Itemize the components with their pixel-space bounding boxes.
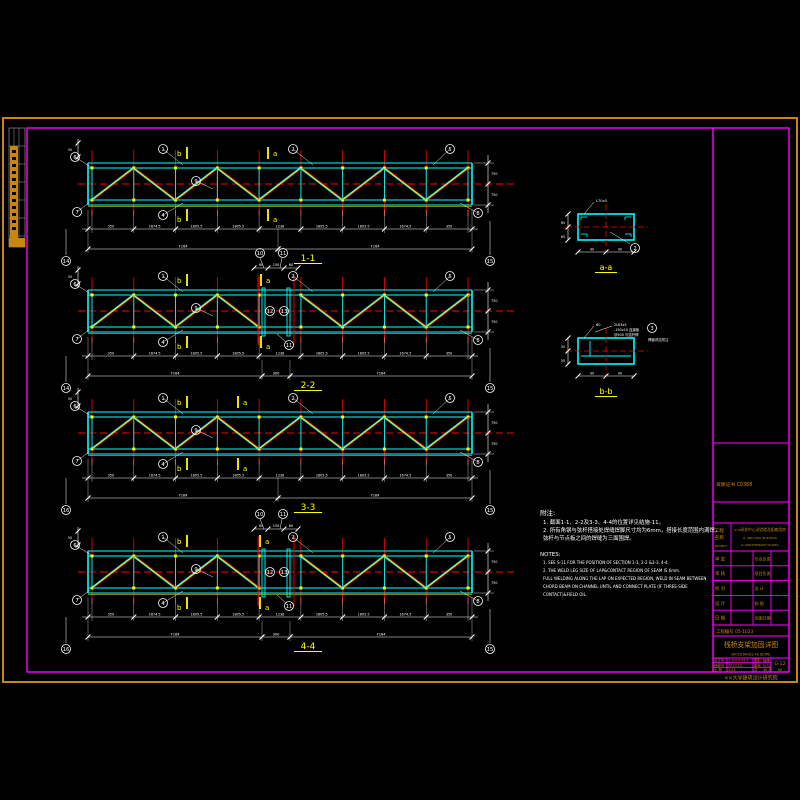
dim-text: 1674.5 xyxy=(149,474,161,478)
callout-number: 14 xyxy=(63,259,70,265)
project-name-en: & APPURTENANT WORKS xyxy=(741,543,778,547)
dim-text: 300 xyxy=(273,633,281,637)
section-marker-b: b xyxy=(177,465,182,473)
dim-text: 1674.5 xyxy=(399,474,411,478)
dim-text: 1238 xyxy=(276,225,285,229)
dim-text: 60 xyxy=(289,524,293,528)
truss-3-3: bbaa3501674.51805.51805.512381805.51805.… xyxy=(62,388,518,515)
dim-text: 55 xyxy=(561,359,565,363)
grid-label: 档案号 xyxy=(714,662,725,667)
grid-label: 设计号 xyxy=(714,658,725,663)
dim-text: 1805.5 xyxy=(358,225,370,229)
callout-number: 7 xyxy=(75,459,78,465)
dim-text: 350 xyxy=(446,474,452,478)
dim-text: 60 xyxy=(259,263,263,267)
dim-text: 1674.5 xyxy=(399,352,411,356)
dim-text: 90 xyxy=(590,372,594,376)
dim-text: 350 xyxy=(446,225,452,229)
notes-title-cn: 附注: xyxy=(540,508,555,517)
callout-number: 16 xyxy=(63,647,70,653)
callout-number: 15 xyxy=(487,386,494,392)
callout-number: 11 xyxy=(280,512,287,518)
section-marker-b: b xyxy=(177,150,182,158)
dim-text: 750 xyxy=(491,581,497,585)
callout-number: 5 xyxy=(448,535,451,541)
sign-row-label: 项目负责 xyxy=(755,570,771,576)
grid-value: 2010.12 xyxy=(728,663,742,667)
annotation-text: 2L63x5 xyxy=(614,323,627,327)
callout-number: 2 xyxy=(291,147,294,153)
dim-text: 60 xyxy=(289,263,293,267)
dim-text: 750 xyxy=(491,442,497,446)
figure-number: G-12 xyxy=(774,661,785,667)
dim-text: 1238 xyxy=(276,352,285,356)
truss-4-4: 60150601011121311bbaa3501674.51805.51805… xyxy=(62,510,518,654)
dim-text: 1805.5 xyxy=(191,225,203,229)
sign-row-label: 审 核 xyxy=(715,570,726,577)
annotation-text: @500 与弦杆焊 xyxy=(614,332,639,337)
section-marker-a: a xyxy=(266,277,270,285)
dim-text: 1238 xyxy=(276,474,285,478)
callout-number: 2 xyxy=(291,274,294,280)
dim-text: 7164 xyxy=(178,245,188,249)
dim-text: 1805.5 xyxy=(232,474,244,478)
dim-text: 50 xyxy=(68,397,72,401)
cad-drawing-canvas: bbaa3501674.51805.51805.512381805.51805.… xyxy=(0,0,800,800)
dim-text: 750 xyxy=(491,299,497,303)
callout-number: 5 xyxy=(448,274,451,280)
binding-strip xyxy=(9,128,25,247)
drawing-title-cn: 栈桥支架加固详图 xyxy=(724,640,779,649)
callout-number: 1 xyxy=(161,396,164,402)
callout-number: 15 xyxy=(487,259,494,265)
dim-text: 7164 xyxy=(370,494,380,498)
dim-text: 50 xyxy=(68,536,72,540)
truss-section-label: 1-1 xyxy=(301,254,316,264)
grid-value: G-12 xyxy=(763,663,771,667)
callout-number: 6 xyxy=(73,543,76,549)
dim-text: 1674.5 xyxy=(399,613,411,617)
cad-viewport: bbaa3501674.51805.51805.512381805.51805.… xyxy=(0,0,800,800)
notes-line-cn: 1. 截面1-1、2-2及3-3、4-4的位置详见结施-11。 xyxy=(543,518,664,526)
notes-line-cn: 弦杆与节点板之间的焊缝为三面围焊。 xyxy=(543,534,635,542)
section-marker-a: a xyxy=(265,604,269,612)
sign-row-label: 专业负责 xyxy=(755,555,771,561)
truss-section-label: 3-3 xyxy=(301,503,316,513)
callout-number: 3 xyxy=(650,326,653,332)
dim-text: 7164 xyxy=(170,633,180,637)
project-name: ××研发中心试验楼及配套用房 xyxy=(734,527,786,532)
grid-value: 2-2010-05/1 xyxy=(728,659,749,663)
notes-block: 附注:1. 截面1-1、2-2及3-3、4-4的位置详见结施-11。2. 所有角… xyxy=(540,508,720,597)
dim-text: 150 xyxy=(273,263,279,267)
dim-text: 1805.5 xyxy=(232,225,244,229)
dim-text: 1805.5 xyxy=(191,352,203,356)
project-name-en: R. AND DEV. BUILDING xyxy=(743,536,777,540)
leader-text: L70x5 xyxy=(596,199,607,203)
dim-text: 750 xyxy=(491,421,497,425)
callout-number: 13 xyxy=(281,570,288,576)
truss-2-2: 60150601011121311bbaa3501674.51805.51805… xyxy=(62,249,518,393)
dim-text: 1805.5 xyxy=(316,352,328,356)
dim-text: 90 xyxy=(590,248,594,252)
sign-row-label: 设 计 xyxy=(755,585,764,591)
dim-text: 350 xyxy=(446,352,452,356)
callout-number: 5 xyxy=(448,396,451,402)
project-label: 名称 xyxy=(715,534,725,541)
section-marker-a: a xyxy=(243,465,247,473)
project-no: 工程编号 05-1023 xyxy=(716,628,754,635)
callout-number: 10 xyxy=(257,512,264,518)
project-label: 工程 xyxy=(715,527,725,534)
section-marker-b: b xyxy=(177,216,182,224)
callout-number: 7 xyxy=(75,337,78,343)
truss-section-label: 2-2 xyxy=(301,381,316,391)
callout-number: 11 xyxy=(286,343,293,349)
dim-text: 50 xyxy=(68,275,72,279)
dim-text: 55 xyxy=(561,345,565,349)
dim-text: 50 xyxy=(68,148,72,152)
dim-text: 1805.5 xyxy=(316,474,328,478)
callout-number: 5 xyxy=(448,147,451,153)
dim-text: 1674.5 xyxy=(399,225,411,229)
section-marker-a: a xyxy=(266,343,270,351)
notes-line-en: CHORD BEAM ON CHANNEL UNTIL AND CONNECT … xyxy=(543,584,688,589)
callout-number: 2 xyxy=(291,535,294,541)
sign-row-label: 设 计 xyxy=(715,600,726,607)
callout-number: 13 xyxy=(281,309,288,315)
grid-value: 结施 xyxy=(763,658,770,663)
notes-line-en: FULL WELDING ALONG THE LAP ON EXPECTED R… xyxy=(543,576,706,581)
callout-number: 2 xyxy=(291,396,294,402)
sheet-number: 40 xyxy=(778,668,783,672)
dim-text: 150 xyxy=(273,524,279,528)
section-marker-a: a xyxy=(273,150,277,158)
institute-name: ××大学建筑设计研究院 xyxy=(724,675,777,682)
dim-text: 65 xyxy=(561,235,565,239)
dim-text: 7164 xyxy=(376,633,386,637)
dim-text: 7164 xyxy=(370,245,380,249)
dim-text: 750 xyxy=(491,320,497,324)
leader-text: 60 xyxy=(596,323,601,327)
dim-text: 1805.5 xyxy=(358,613,370,617)
dim-text: 1805.5 xyxy=(358,474,370,478)
title-block: 资质证书 C0368工程名称PROJECT××研发中心试验楼及配套用房R. AN… xyxy=(713,443,789,682)
section-marker-b: b xyxy=(177,538,182,546)
callout-number: 8 xyxy=(476,338,479,344)
dim-text: 300 xyxy=(273,372,281,376)
sign-row-label: 审 定 xyxy=(715,555,726,562)
dim-text: 1674.5 xyxy=(149,613,161,617)
callout-number: 9 xyxy=(194,567,197,573)
truss-section-label: 4-4 xyxy=(301,642,316,652)
callout-number: 7 xyxy=(75,598,78,604)
callout-number: 2 xyxy=(633,246,636,252)
section-marker-b: b xyxy=(177,277,182,285)
sign-row-label: 制 图 xyxy=(755,600,764,606)
dim-text: 1805.5 xyxy=(191,474,203,478)
cert-text: 资质证书 C0368 xyxy=(716,481,752,488)
grid-label: 比 例 xyxy=(714,667,722,672)
callout-number: 1 xyxy=(161,535,164,541)
callout-number: 8 xyxy=(476,211,479,217)
notes-line-en: CONTACT)&FIELD OIL. xyxy=(543,592,587,597)
drawing-title-en: CROSS RACKS XX DETAIL xyxy=(731,653,771,657)
dim-text: 1805.5 xyxy=(316,225,328,229)
section-marker-b: b xyxy=(177,399,182,407)
grid-label: 图别 xyxy=(754,658,761,663)
callout-number: 6 xyxy=(73,155,76,161)
callout-number: 15 xyxy=(487,647,494,653)
callout-number: 11 xyxy=(280,251,287,257)
dim-text: 90 xyxy=(618,248,622,252)
dim-text: 1805.5 xyxy=(316,613,328,617)
dim-text: 1674.5 xyxy=(149,225,161,229)
dim-text: 7164 xyxy=(170,372,180,376)
outer-border xyxy=(3,118,797,682)
callout-number: 9 xyxy=(194,428,197,434)
dim-text: 350 xyxy=(108,474,114,478)
dim-text: 750 xyxy=(491,172,497,176)
sign-row-label: 日 期 xyxy=(715,616,726,622)
callout-number: 7 xyxy=(75,210,78,216)
callout-number: 10 xyxy=(257,251,264,257)
drawing-frame xyxy=(3,118,797,682)
callout-number: 14 xyxy=(63,386,70,392)
dim-text: 7164 xyxy=(376,372,386,376)
callout-number: 15 xyxy=(487,508,494,514)
dim-text: 65 xyxy=(561,221,565,225)
callout-number: 1 xyxy=(161,147,164,153)
callout-number: 12 xyxy=(267,309,274,315)
dim-text: 350 xyxy=(108,225,114,229)
grid-value: 1:25 xyxy=(728,668,736,672)
callout-number: 1 xyxy=(161,274,164,280)
dim-text: 1238 xyxy=(276,613,285,617)
dim-text: 1805.5 xyxy=(358,352,370,356)
callout-number: 9 xyxy=(194,179,197,185)
dim-text: 1805.5 xyxy=(191,613,203,617)
inner-border xyxy=(27,128,789,672)
dim-text: 350 xyxy=(446,613,452,617)
section-view-label: b-b xyxy=(599,387,612,396)
dim-text: 90 xyxy=(618,372,622,376)
section-a-a: 65659090L70x5a-a2 xyxy=(561,199,648,273)
sign-row-label: 校 对 xyxy=(715,585,726,592)
section-marker-b: b xyxy=(177,604,182,612)
section-b-b: 5555909060b-b2L63x5-150x10 连接板@500 与弦杆焊3… xyxy=(561,323,669,397)
dim-text: 1674.5 xyxy=(149,352,161,356)
dim-text: 1805.5 xyxy=(232,352,244,356)
callout-number: 8 xyxy=(476,599,479,605)
notes-line-en: 2. THE WELD LEG SIZE OF LAP&CONTACT REGI… xyxy=(543,568,680,573)
annotation-text: -150x10 连接板 xyxy=(614,327,640,332)
callout-number: 6 xyxy=(73,404,76,410)
grid-label: 图号 xyxy=(754,662,761,667)
dim-text: 350 xyxy=(108,352,114,356)
truss-1-1: bbaa3501674.51805.51805.512381805.51805.… xyxy=(62,139,518,266)
section-marker-a: a xyxy=(265,538,269,546)
callout-number: 6 xyxy=(73,282,76,288)
sign-row-label: 出图日期 xyxy=(755,615,771,621)
section-marker-a: a xyxy=(243,399,247,407)
notes-line-cn: 2. 所有角钢与弦杆搭接处焊缝焊脚尺寸均为6mm，搭接长度范围内满焊， xyxy=(543,526,720,534)
dim-text: 750 xyxy=(491,193,497,197)
dim-text: 750 xyxy=(491,560,497,564)
annotation-text: 焊缝详见附注 xyxy=(648,337,669,342)
notes-title-en: NOTES: xyxy=(540,552,561,558)
dim-text: 350 xyxy=(108,613,114,617)
dim-text: 60 xyxy=(259,524,263,528)
callout-number: 16 xyxy=(63,508,70,514)
section-marker-a: a xyxy=(273,216,277,224)
dim-text: 1805.5 xyxy=(232,613,244,617)
callout-number: 8 xyxy=(476,460,479,466)
callout-number: 9 xyxy=(194,306,197,312)
callout-number: 12 xyxy=(267,570,274,576)
project-label-en: PROJECT xyxy=(715,544,728,548)
dim-text: 7164 xyxy=(178,494,188,498)
notes-line-en: 1. SEE S-11 FOR THE POSITION OF SECTION … xyxy=(543,560,669,565)
section-view-label: a-a xyxy=(600,263,613,272)
section-marker-b: b xyxy=(177,343,182,351)
callout-number: 11 xyxy=(286,604,293,610)
